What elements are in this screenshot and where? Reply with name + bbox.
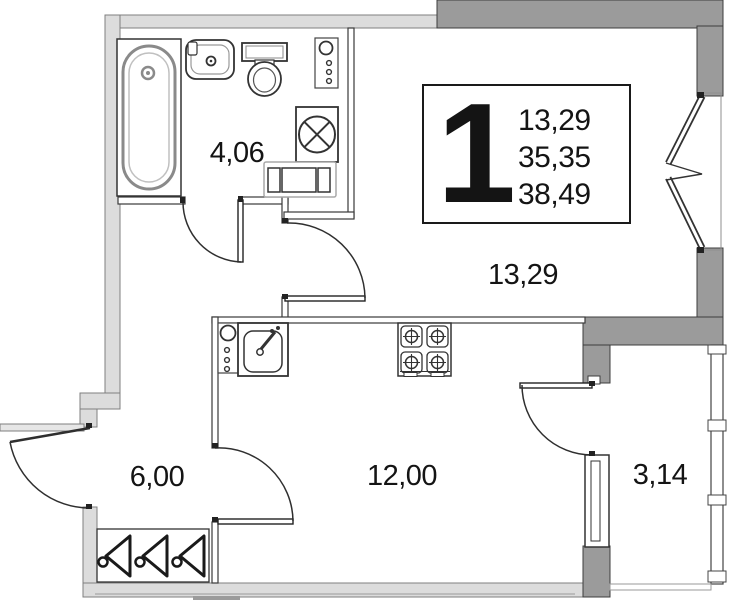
door-leaf (238, 200, 243, 262)
bathroom-right-wall (348, 28, 354, 218)
door-swing-arc (287, 223, 365, 298)
entrance-door (10, 423, 92, 509)
bay-pane-lower-2 (670, 177, 704, 247)
doors (10, 196, 595, 524)
balcony-bottom-edge (610, 584, 711, 590)
living-room-door (282, 218, 365, 301)
bath-risers-icon (315, 38, 338, 88)
room-label-bathroom: 4,06 (210, 137, 264, 169)
wall-bottom (83, 583, 583, 597)
washing-machine-icon (296, 107, 338, 162)
wall-band-living-balcony (583, 317, 723, 345)
kitchen-risers-icon (218, 323, 239, 373)
kitchen-door (212, 443, 293, 524)
wall-top (105, 15, 438, 28)
stove-icon (398, 323, 451, 377)
basin-tap-dot (210, 60, 213, 63)
balcony-block-window (585, 455, 609, 547)
wall-under-balcony-window (583, 546, 610, 597)
door-swing-arc (522, 385, 592, 455)
riser-small (225, 348, 230, 353)
door-jamb (86, 504, 92, 509)
door-jamb (589, 451, 595, 456)
hall-kitchen-wall-lower (212, 522, 218, 583)
radiator-cap-left (268, 168, 280, 192)
glazing-mullion (708, 420, 726, 431)
bathroom-bottom-wall-right (241, 197, 288, 204)
unit-total-area: 38,49 (518, 178, 591, 211)
balcony-door (520, 381, 595, 456)
bay-outer-line (703, 93, 721, 250)
bay-pane-lower-1 (666, 179, 700, 249)
toilet-icon (242, 43, 287, 96)
unit-rooms-count: 1 (437, 74, 516, 233)
riser-small (225, 358, 230, 363)
bathtub-icon (117, 39, 181, 196)
radiator-cap-right (318, 168, 330, 192)
floor-plan-svg: 1 13,29 35,35 38,49 4,06 13,29 6,00 12,0… (0, 0, 745, 600)
radiator-middle (282, 168, 316, 192)
hall-kitchen-wall-upper (212, 317, 218, 448)
bay-window (666, 92, 721, 253)
door-jamb (282, 294, 288, 299)
door-leaf (285, 296, 365, 301)
bathtub-drain-dot (146, 71, 150, 75)
door-swing-arc (215, 448, 293, 521)
glazing-mullion (708, 495, 726, 505)
bay-pane-upper-1 (666, 95, 700, 162)
bathtub-outline (117, 39, 181, 196)
door-swing-arc (183, 202, 241, 262)
kitchen-fixtures (218, 323, 451, 377)
room-label-balcony: 3,14 (633, 459, 688, 491)
bay-jamb-top (697, 92, 704, 98)
stove-knob (404, 373, 417, 377)
riser-large (221, 326, 236, 341)
unit-info-box: 1 13,29 35,35 38,49 (423, 74, 630, 233)
door-leaf (520, 383, 592, 388)
unit-area-no-balcony: 35,35 (518, 141, 591, 174)
radiator-shelf-icon (264, 162, 336, 197)
wall-left-lower (83, 507, 97, 584)
bathroom-fixtures (117, 38, 338, 197)
bay-column-top (697, 26, 723, 96)
wall-left-step-a (80, 393, 120, 409)
room-label-kitchen: 12,00 (367, 460, 437, 492)
bathroom-bottom-wall-left (118, 197, 185, 204)
wall-top-right (437, 0, 723, 28)
riser-small (327, 70, 332, 75)
door-jamb (589, 381, 595, 386)
stove-knob (431, 373, 444, 377)
glazing-mullion (708, 345, 726, 354)
room-label-hall: 6,00 (130, 461, 184, 493)
stove-body (398, 323, 451, 376)
glazing-frame (711, 345, 723, 584)
faucet-spout (257, 349, 263, 355)
riser-large (320, 42, 333, 55)
door-jamb (238, 196, 243, 202)
door-jamb (86, 423, 92, 428)
bathroom-door (180, 196, 243, 262)
bay-pane-upper-2 (671, 97, 705, 164)
glazing-mullion (708, 571, 726, 582)
door-jamb (282, 218, 288, 223)
neighbor-block (193, 596, 240, 600)
wardrobe-icon (97, 529, 209, 582)
faucet-handle (276, 326, 280, 330)
door-swing-arc (10, 442, 91, 508)
room-label-living: 13,29 (488, 259, 558, 291)
riser-small (225, 367, 230, 372)
wall-stairwell (0, 424, 84, 431)
bathroom-lower-wall (284, 212, 354, 219)
door-jamb (212, 443, 218, 448)
basin-soap-box (188, 42, 197, 55)
riser-small (327, 79, 332, 84)
door-jamb (180, 197, 185, 203)
washbasin-icon (186, 40, 234, 79)
bay-jamb-bottom (697, 247, 704, 253)
door-jamb (212, 517, 218, 522)
kitchen-sink-icon (238, 323, 288, 376)
floor-plan: 1 13,29 35,35 38,49 4,06 13,29 6,00 12,0… (0, 0, 745, 600)
unit-living-area: 13,29 (518, 104, 591, 137)
door-leaf (218, 519, 293, 524)
riser-small (327, 61, 332, 66)
block-window-frame (585, 455, 609, 547)
